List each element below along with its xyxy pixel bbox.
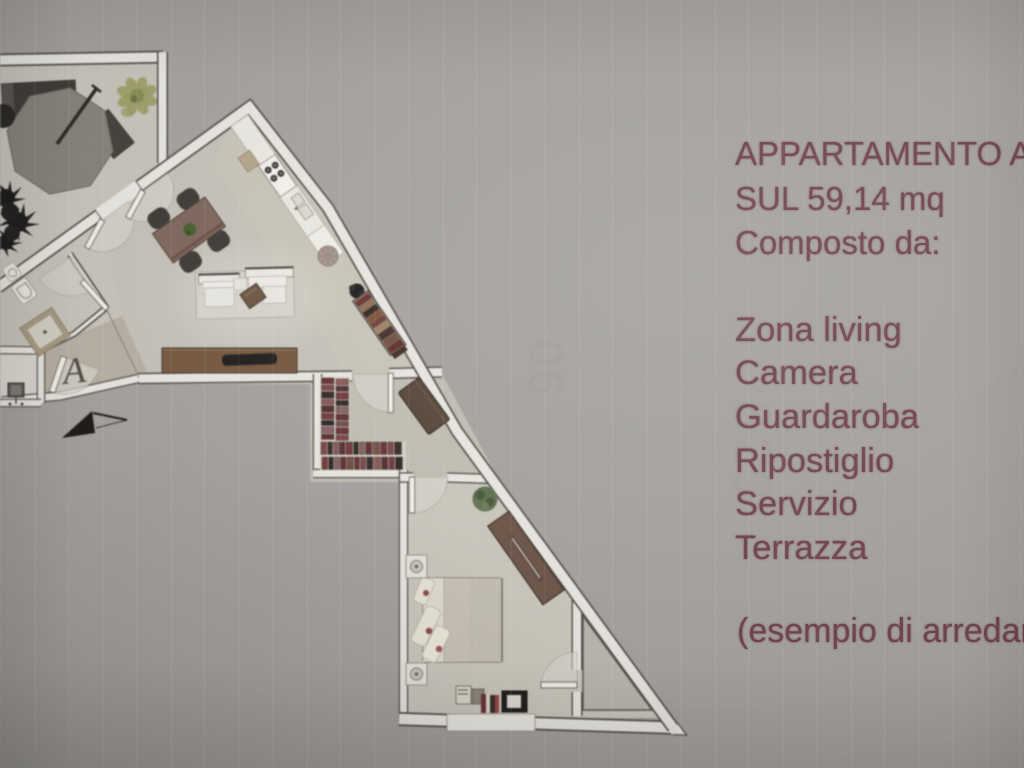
svg-text:06: 06: [520, 340, 572, 399]
